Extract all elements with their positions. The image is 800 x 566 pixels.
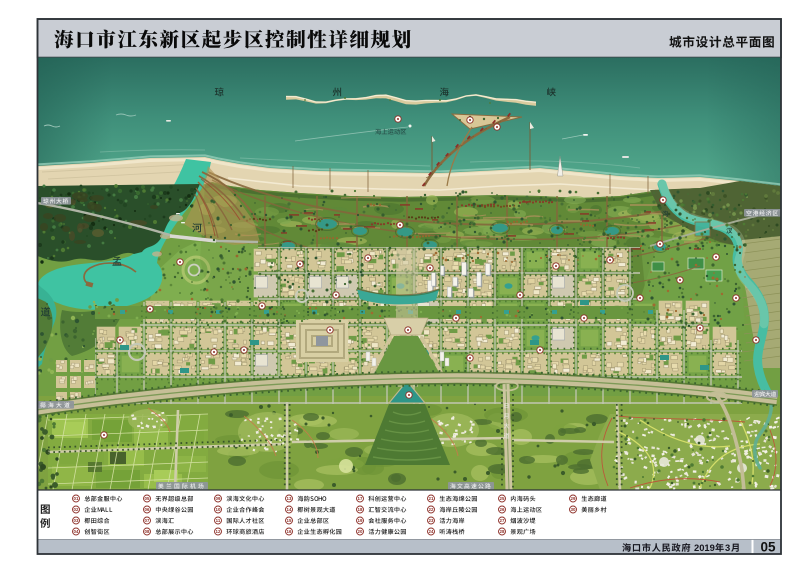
svg-text:04: 04 — [74, 529, 79, 534]
svg-text:29: 29 — [571, 496, 576, 501]
svg-text:26: 26 — [500, 507, 505, 512]
svg-text:17: 17 — [358, 496, 363, 501]
svg-text:08: 08 — [145, 529, 150, 534]
svg-text:01: 01 — [74, 496, 79, 501]
svg-text:02: 02 — [74, 507, 79, 512]
svg-text:11: 11 — [216, 518, 221, 523]
svg-text:05: 05 — [760, 540, 776, 555]
svg-text:05: 05 — [145, 496, 150, 501]
svg-text:18: 18 — [358, 507, 363, 512]
svg-text:15: 15 — [287, 518, 292, 523]
svg-text:09: 09 — [216, 496, 221, 501]
svg-text:30: 30 — [571, 507, 576, 512]
svg-text:24: 24 — [429, 529, 434, 534]
svg-text:14: 14 — [287, 507, 292, 512]
svg-text:12: 12 — [216, 529, 221, 534]
svg-text:28: 28 — [500, 529, 505, 534]
svg-text:23: 23 — [429, 518, 434, 523]
svg-text:10: 10 — [216, 507, 221, 512]
svg-text:19: 19 — [358, 518, 363, 523]
svg-text:06: 06 — [145, 507, 150, 512]
svg-text:25: 25 — [500, 496, 505, 501]
svg-text:16: 16 — [287, 529, 292, 534]
svg-text:13: 13 — [287, 496, 292, 501]
svg-text:27: 27 — [500, 518, 505, 523]
svg-text:03: 03 — [74, 518, 79, 523]
svg-text:20: 20 — [358, 529, 363, 534]
svg-text:22: 22 — [429, 507, 434, 512]
svg-text:2019: 2019 — [694, 542, 715, 553]
svg-text:21: 21 — [429, 496, 434, 501]
svg-text:07: 07 — [145, 518, 150, 523]
svg-text:3: 3 — [725, 542, 730, 553]
